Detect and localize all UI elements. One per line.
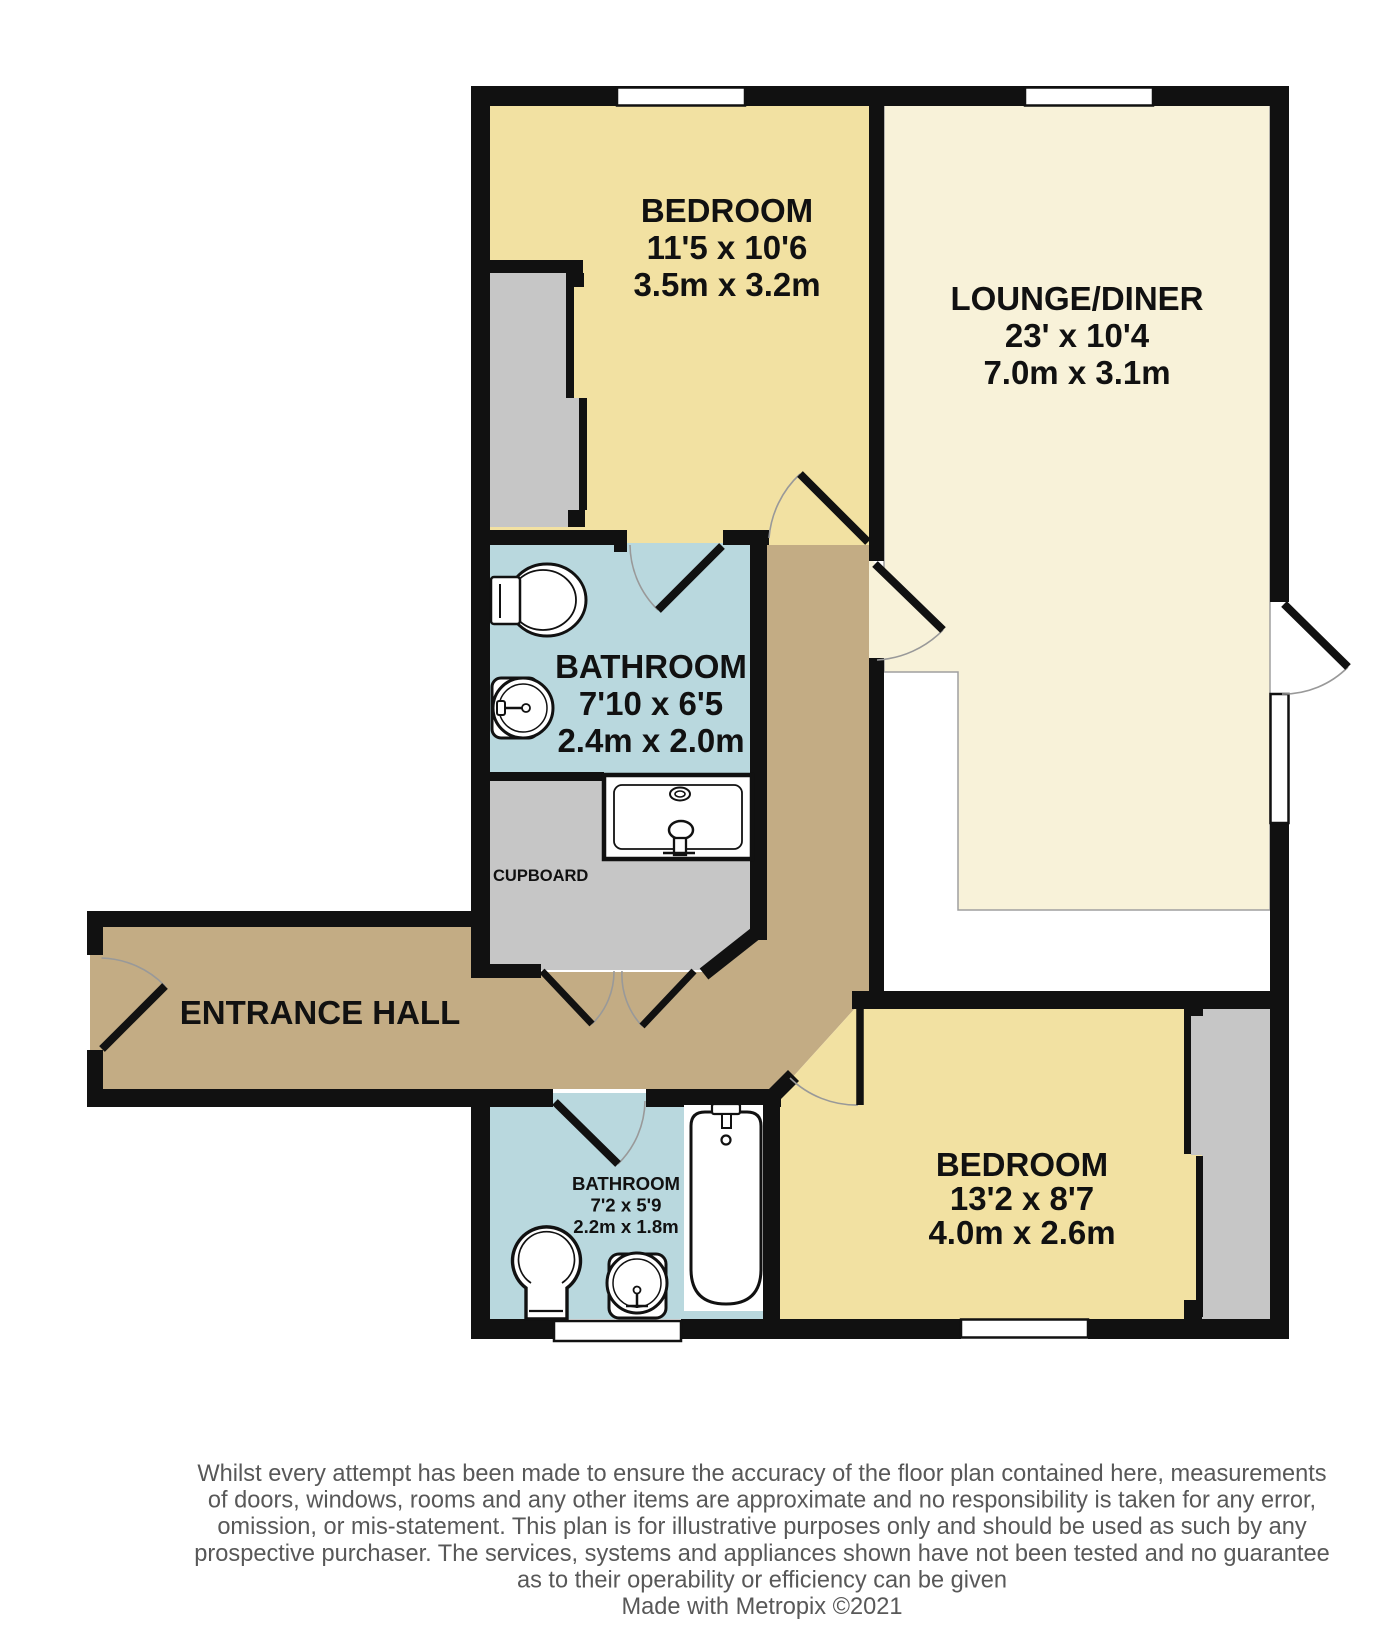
svg-text:BATHROOM: BATHROOM [555,648,747,685]
svg-text:omission, or mis-statement. Th: omission, or mis-statement. This plan is… [217,1514,1307,1540]
svg-text:LOUNGE/DINER: LOUNGE/DINER [950,280,1203,317]
svg-text:2.2m x 1.8m: 2.2m x 1.8m [573,1216,678,1237]
svg-text:BEDROOM: BEDROOM [641,192,813,229]
svg-text:7'10 x 6'5: 7'10 x 6'5 [579,685,723,722]
svg-text:BEDROOM: BEDROOM [936,1146,1108,1183]
svg-text:23' x 10'4: 23' x 10'4 [1005,317,1150,354]
svg-text:of doors, windows, rooms and a: of doors, windows, rooms and any other i… [208,1488,1316,1514]
svg-text:ENTRANCE HALL: ENTRANCE HALL [180,994,460,1031]
svg-text:11'5 x 10'6: 11'5 x 10'6 [647,229,808,266]
svg-text:BATHROOM: BATHROOM [572,1173,680,1194]
svg-text:as to their operability or eff: as to their operability or efficiency ca… [517,1567,1007,1593]
svg-text:prospective purchaser. The ser: prospective purchaser. The services, sys… [194,1541,1329,1567]
svg-text:3.5m x 3.2m: 3.5m x 3.2m [633,266,820,303]
svg-text:13'2 x 8'7: 13'2 x 8'7 [950,1180,1094,1217]
svg-text:Made with Metropix ©2021: Made with Metropix ©2021 [622,1594,903,1620]
svg-text:2.4m x 2.0m: 2.4m x 2.0m [557,722,744,759]
svg-text:CUPBOARD: CUPBOARD [493,867,588,885]
svg-text:7'2 x 5'9: 7'2 x 5'9 [591,1195,662,1216]
svg-text:4.0m x 2.6m: 4.0m x 2.6m [928,1214,1115,1251]
svg-text:7.0m x 3.1m: 7.0m x 3.1m [983,354,1170,391]
svg-text:Whilst every attempt has been: Whilst every attempt has been made to en… [197,1461,1326,1487]
